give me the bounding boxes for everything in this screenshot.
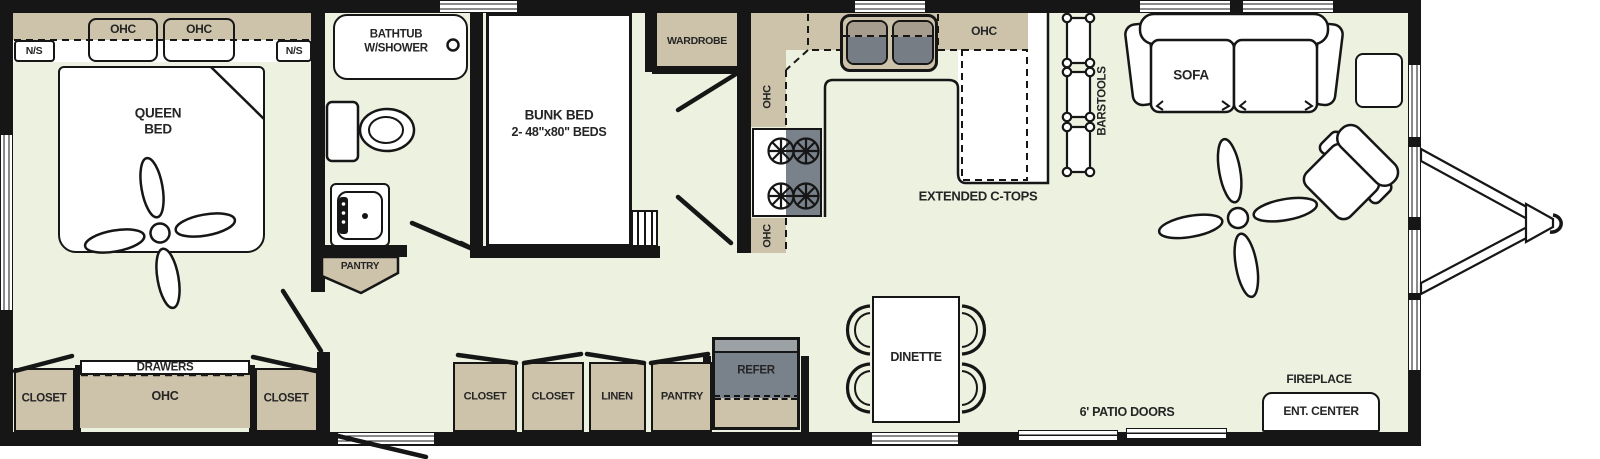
sofa-label: SOFA xyxy=(1173,68,1209,82)
ohc-label: OHC xyxy=(110,23,136,35)
wardrobe-label: WARDROBE xyxy=(667,36,727,47)
bathtub-label: BATHTUB xyxy=(370,29,423,41)
pantry-label: PANTRY xyxy=(661,392,703,403)
drawers-label: DRAWERS xyxy=(137,362,194,374)
label-layer: OHC OHC N/S N/S QUEEN BED CLOSET DRAWERS… xyxy=(0,0,1600,459)
nightstand-label: N/S xyxy=(26,46,43,57)
queen-bed-label: QUEEN xyxy=(135,106,182,120)
closet-label: CLOSET xyxy=(22,393,67,405)
pantry-label: PANTRY xyxy=(341,262,379,272)
nightstand-label: N/S xyxy=(286,46,303,57)
patio-doors-label: 6' PATIO DOORS xyxy=(1080,406,1175,419)
ohc-label: OHC xyxy=(186,23,212,35)
bathtub-label: W/SHOWER xyxy=(364,43,427,55)
barstools-label: BARSTOOLS xyxy=(1097,66,1109,135)
closet-label: CLOSET xyxy=(532,392,575,403)
linen-label: LINEN xyxy=(601,392,633,403)
dinette-label: DINETTE xyxy=(890,351,941,364)
ohc-label: OHC xyxy=(763,224,774,248)
queen-bed-label: BED xyxy=(144,122,172,136)
bunk-bed-label: 2- 48"x80" BEDS xyxy=(512,126,607,139)
extended-ctops-label: EXTENDED C-TOPS xyxy=(919,190,1038,203)
ent-center-label: ENT. CENTER xyxy=(1283,405,1358,417)
refer-label: REFER xyxy=(737,365,774,377)
ohc-label: OHC xyxy=(763,85,774,109)
fireplace-label: FIREPLACE xyxy=(1286,373,1351,385)
ohc-label: OHC xyxy=(152,390,179,403)
closet-label: CLOSET xyxy=(264,393,309,405)
closet-label: CLOSET xyxy=(464,392,507,403)
floorplan-canvas: OHC OHC N/S N/S QUEEN BED CLOSET DRAWERS… xyxy=(0,0,1600,459)
bunk-bed-label: BUNK BED xyxy=(525,108,594,122)
ohc-label: OHC xyxy=(971,25,997,37)
